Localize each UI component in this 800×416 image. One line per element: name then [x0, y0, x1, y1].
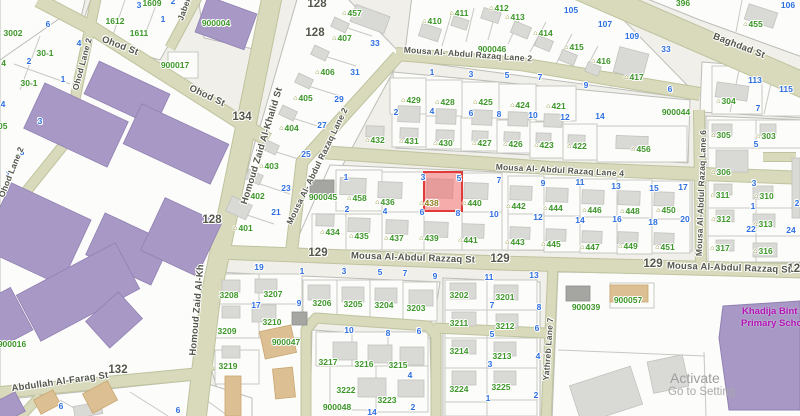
parcel-label[interactable]: ⌂407	[332, 33, 351, 43]
parcel-label[interactable]: ⌂410	[422, 16, 441, 26]
parcel-number: 303	[762, 131, 776, 141]
selected-parcel-label[interactable]: ⌂438	[419, 198, 438, 208]
parcel-label[interactable]: ⌂4	[0, 58, 6, 68]
address-number: 16	[612, 214, 621, 224]
building	[464, 183, 489, 200]
parcel-number: 422	[573, 141, 587, 151]
address-number: 9	[297, 298, 302, 308]
parcel-number: 423	[540, 140, 554, 150]
building	[222, 346, 240, 358]
house-icon: ⌂	[655, 244, 659, 251]
parcel-label[interactable]: ⌂312	[711, 214, 730, 224]
parcel-label[interactable]: ⌂445	[541, 239, 560, 249]
parcel-number: 417	[630, 72, 644, 82]
building	[222, 306, 240, 318]
address-number: 1	[430, 67, 435, 77]
address-number: 6	[420, 207, 425, 217]
house-icon: ⌂	[349, 233, 353, 240]
facility-label[interactable]: 900045	[309, 192, 337, 202]
house-icon: ⌂	[506, 203, 510, 210]
parcel-number: 414	[539, 28, 553, 38]
address-number: 23	[281, 183, 290, 193]
parcel-number: 424	[516, 100, 530, 110]
parcel-number: 415	[570, 42, 584, 52]
parcel-number: 305	[717, 130, 731, 140]
house-icon: ⌂	[422, 18, 426, 25]
parcel-number: 306	[717, 167, 731, 177]
parcel-number: 435	[355, 231, 369, 241]
house-icon: ⌂	[458, 237, 462, 244]
facility-label[interactable]: 3209	[218, 326, 237, 336]
parcel-label[interactable]: ⌂444	[543, 203, 562, 213]
address-number: 7	[403, 268, 408, 278]
parcel-label[interactable]: ⌂313	[753, 219, 772, 229]
house-icon: ⌂	[711, 216, 715, 223]
address-number: 3	[421, 172, 426, 182]
address-number: 17	[678, 182, 687, 192]
facility-label[interactable]: 900017	[161, 60, 189, 70]
parcel-label[interactable]: ⌂421	[546, 101, 565, 111]
parcel-label[interactable]: ⌂458	[347, 193, 366, 203]
parcel-label[interactable]: ⌂425	[473, 97, 492, 107]
parcel-label[interactable]: ⌂427	[472, 138, 491, 148]
parcel-number: 458	[353, 193, 367, 203]
address-number: 3	[137, 0, 142, 10]
address-number: 8	[456, 208, 461, 218]
parcel-label[interactable]: ⌂456	[631, 144, 650, 154]
parcel-label[interactable]: ⌂413	[505, 12, 524, 22]
address-number: 6	[469, 108, 474, 118]
address-number: 4	[383, 206, 388, 216]
address-number: 7	[538, 72, 543, 82]
parcel-number: 437	[390, 233, 404, 243]
parcel-label[interactable]: ⌂417	[624, 72, 643, 82]
windows-activate-watermark-line2: Go to Setting	[668, 386, 735, 398]
building	[452, 371, 476, 385]
parcel-label[interactable]: ⌂423	[534, 140, 553, 150]
address-number: 13	[529, 270, 538, 280]
house-icon: ⌂	[656, 207, 660, 214]
facility-label[interactable]: 900016	[0, 339, 26, 349]
facility-label[interactable]: 3216	[355, 359, 374, 369]
parcel-number: 401	[239, 223, 253, 233]
map-canvas[interactable]: Activate Go to Setting 16091612161130023…	[0, 0, 800, 416]
address-number: 2	[171, 0, 176, 6]
address-number: 8	[537, 302, 542, 312]
house-icon: ⌂	[332, 35, 336, 42]
address-number: 13	[611, 181, 620, 191]
address-number: 31	[350, 67, 359, 77]
building	[566, 286, 590, 301]
parcel-label[interactable]: ⌂305	[711, 130, 730, 140]
address-number: 5	[505, 70, 510, 80]
address-number: 15	[649, 183, 658, 193]
address-number: 6	[59, 401, 64, 411]
address-number: 17	[251, 300, 260, 310]
house-icon: ⌂	[375, 199, 379, 206]
house-icon: ⌂	[365, 137, 369, 144]
parcel[interactable]	[445, 402, 487, 416]
parcel-label[interactable]: ⌂429	[401, 95, 420, 105]
address-number: 1	[300, 266, 305, 276]
building	[618, 191, 640, 206]
address-number: 9	[584, 80, 589, 90]
facility-label[interactable]: 900057	[614, 295, 642, 305]
facility-label[interactable]: 3223	[378, 395, 397, 405]
parcel[interactable]	[487, 400, 537, 416]
address-number: 2	[394, 107, 399, 117]
parcel-number: 4	[1, 58, 6, 68]
parcel-label[interactable]: ⌂439	[419, 233, 438, 243]
address-number: 7	[756, 103, 761, 113]
building	[398, 106, 421, 123]
parcel-number: 410	[428, 16, 442, 26]
house-icon: ⌂	[401, 97, 405, 104]
facility-label[interactable]: 3210	[263, 317, 282, 327]
address-number: 6	[535, 323, 540, 333]
parcel-number: 438	[425, 198, 439, 208]
address-number: 115	[779, 84, 793, 94]
parcel-label[interactable]: ⌂447	[580, 242, 599, 252]
parcel-label[interactable]: ⌂449	[618, 241, 637, 251]
parcel-label[interactable]: ⌂430	[433, 138, 452, 148]
parcel-number: 429	[407, 95, 421, 105]
building	[508, 112, 528, 127]
facility-label[interactable]: 900004	[202, 18, 230, 28]
address-number: 14	[595, 111, 604, 121]
address-number: 106	[781, 0, 795, 10]
block-number-label: 128	[202, 214, 221, 226]
facility-label[interactable]: 1612	[106, 16, 125, 26]
address-number: 12	[533, 212, 542, 222]
facility-label[interactable]: 30-1	[36, 48, 53, 58]
parcel-label[interactable]: ⌂310	[754, 191, 773, 201]
facility-label[interactable]: 3002	[4, 28, 23, 38]
address-number: 6	[417, 326, 422, 336]
block-number-label: 129	[490, 253, 509, 265]
parcel-number: 416	[597, 56, 611, 66]
facility-label[interactable]: 900048	[323, 402, 351, 412]
parcel-number: 411	[455, 8, 469, 18]
parcel-label[interactable]: ⌂446	[582, 205, 601, 215]
parcel-label[interactable]: ⌂448	[620, 206, 639, 216]
address-number: 1	[486, 393, 491, 403]
house-icon: ⌂	[618, 243, 622, 250]
block-number-label: 129	[643, 258, 662, 270]
house-icon: ⌂	[534, 142, 538, 149]
parcel-number: 407	[338, 33, 352, 43]
house-icon: ⌂	[320, 229, 324, 236]
parcel-number: 448	[626, 206, 640, 216]
facility-label[interactable]: 3206	[313, 298, 332, 308]
facility-label[interactable]: 3202	[450, 290, 469, 300]
facility-label[interactable]: 1609	[143, 0, 162, 8]
address-number: 22	[746, 224, 755, 234]
parcel-number: 317	[716, 243, 730, 253]
address-number: 24	[786, 225, 795, 235]
parcel-number: 406	[321, 67, 335, 77]
house-icon: ⌂	[347, 195, 351, 202]
address-number: 4	[536, 351, 541, 361]
house-icon: ⌂	[433, 140, 437, 147]
house-icon: ⌂	[419, 200, 423, 207]
house-icon: ⌂	[342, 10, 346, 17]
parcel-number: 456	[637, 144, 651, 154]
address-number: 6	[668, 84, 673, 94]
facility-label[interactable]: 3224	[450, 384, 469, 394]
address-number: 4	[408, 370, 413, 380]
building	[792, 158, 800, 218]
parcel-number: 304	[722, 96, 736, 106]
address-number: 4	[430, 106, 435, 116]
parcel-label[interactable]: ⌂422	[567, 141, 586, 151]
house-icon: ⌂	[564, 44, 568, 51]
parcel-number: 430	[439, 138, 453, 148]
parcel-label[interactable]: ⌂434	[320, 227, 339, 237]
parcel-number: 441	[464, 235, 478, 245]
address-number: 3	[752, 178, 757, 188]
facility-label[interactable]: 3215	[389, 360, 408, 370]
facility-label[interactable]: 900044	[662, 107, 690, 117]
house-icon: ⌂	[533, 30, 537, 37]
parcel-label[interactable]: ⌂457	[342, 8, 361, 18]
house-icon: ⌂	[399, 138, 403, 145]
parcel-label[interactable]: ⌂428	[435, 97, 454, 107]
address-number: 20	[680, 214, 689, 224]
parcel-label[interactable]: ⌂435	[349, 231, 368, 241]
facility-label[interactable]: 3225	[492, 382, 511, 392]
address-number: 1	[61, 74, 66, 84]
house-icon: ⌂	[711, 169, 715, 176]
parcel-label[interactable]: ⌂440	[462, 198, 481, 208]
address-number: 19	[254, 262, 263, 272]
parcel-number: 447	[586, 242, 600, 252]
parcel-number: 450	[662, 205, 676, 215]
address-number: 6	[46, 19, 51, 29]
facility-label[interactable]: 3208	[220, 290, 239, 300]
address-number: 33	[661, 44, 670, 54]
building	[292, 312, 307, 325]
facility-label[interactable]: 3005	[0, 121, 7, 131]
parcel-label[interactable]: ⌂455	[743, 19, 762, 29]
facility-label[interactable]: 3204	[375, 300, 394, 310]
parcel-number: 316	[759, 246, 773, 256]
house-icon: ⌂	[567, 143, 571, 150]
house-icon: ⌂	[505, 14, 509, 21]
facility-label[interactable]: 3222	[337, 385, 356, 395]
building	[378, 182, 403, 199]
facility-label[interactable]: 3207	[264, 289, 283, 299]
building	[510, 186, 532, 201]
address-number: 5	[754, 139, 759, 149]
address-number: 14	[367, 407, 376, 416]
address-number: 3	[469, 69, 474, 79]
school-name-label: Primary School G	[741, 318, 800, 329]
house-icon: ⌂	[279, 125, 283, 132]
facility-label[interactable]: 1611	[130, 28, 148, 38]
parcel-label[interactable]: ⌂443	[505, 237, 524, 247]
house-icon: ⌂	[384, 235, 388, 242]
address-number: 3	[488, 359, 493, 369]
parcel-number: 428	[441, 97, 455, 107]
building	[225, 376, 241, 416]
parcel-label[interactable]: ⌂424	[510, 100, 529, 110]
parcel-number: 425	[479, 97, 493, 107]
facility-label[interactable]: 3214	[450, 346, 469, 356]
parcel-number: 451	[661, 242, 675, 252]
address-number: 113	[748, 75, 762, 85]
house-icon: ⌂	[462, 200, 466, 207]
building	[398, 380, 424, 397]
parcel-number: 442	[512, 201, 526, 211]
house-icon: ⌂	[580, 244, 584, 251]
facility-label[interactable]: 30-1	[20, 78, 37, 88]
house-icon: ⌂	[473, 99, 477, 106]
parcel-number: 432	[371, 135, 385, 145]
parcel-number: 311	[716, 190, 730, 200]
house-icon: ⌂	[631, 146, 635, 153]
address-number: 9	[433, 271, 438, 281]
parcel-label[interactable]: ⌂411	[450, 8, 469, 18]
house-icon: ⌂	[711, 192, 715, 199]
facility-label[interactable]: 3211	[450, 318, 468, 328]
address-number: 2	[27, 56, 32, 66]
parcel-number: 444	[549, 203, 563, 213]
parcel-number: 312	[717, 214, 731, 224]
address-number: 1	[344, 172, 349, 182]
facility-label[interactable]: 3219	[219, 361, 238, 371]
house-icon: ⌂	[450, 10, 454, 17]
parcel-label[interactable]: ⌂431	[399, 136, 418, 146]
address-number: 10	[489, 209, 498, 219]
house-icon: ⌂	[546, 103, 550, 110]
house-icon: ⌂	[541, 241, 545, 248]
parcel-label[interactable]: ⌂406	[315, 67, 334, 77]
address-number: 29	[334, 94, 343, 104]
address-number: 3	[38, 116, 43, 126]
parcel-label[interactable]: ⌂405	[293, 93, 312, 103]
house-icon: ⌂	[543, 205, 547, 212]
facility-label[interactable]: 900047	[272, 337, 300, 347]
parcel-number: 455	[749, 19, 763, 29]
facility-label[interactable]: 900039	[572, 302, 600, 312]
facility-label[interactable]: 3212	[496, 321, 515, 331]
parcel-label[interactable]: ⌂404	[279, 123, 298, 133]
parcel-label[interactable]: ⌂401	[233, 223, 252, 233]
school-name-label: Khadija Bint Khuw	[742, 306, 800, 317]
block-number-label: 134	[232, 111, 251, 123]
parcel-label[interactable]: ⌂437	[384, 233, 403, 243]
house-icon: ⌂	[624, 74, 628, 81]
house-icon: ⌂	[710, 245, 714, 252]
parcel-number: 449	[624, 241, 638, 251]
parcel-label[interactable]: ⌂426	[503, 139, 522, 149]
facility-label[interactable]: 3213	[493, 351, 512, 361]
house-icon: ⌂	[510, 102, 514, 109]
parcel-label[interactable]: ⌂317	[710, 243, 729, 253]
address-number: 25	[301, 149, 310, 159]
address-number: 4	[1, 99, 6, 109]
address-number: 2	[795, 198, 800, 208]
house-icon: ⌂	[711, 132, 715, 139]
house-icon: ⌂	[435, 99, 439, 106]
house-icon: ⌂	[472, 140, 476, 147]
parcel-label[interactable]: ⌂432	[365, 135, 384, 145]
parcel-number: 457	[348, 8, 362, 18]
address-number: 12	[560, 112, 569, 122]
parcel-label[interactable]: ⌂416	[591, 56, 610, 66]
map-geometry	[0, 0, 800, 416]
address-number: 7	[497, 175, 502, 185]
building	[272, 367, 295, 399]
building	[582, 190, 604, 205]
parcel-number: 310	[760, 191, 774, 201]
building	[436, 109, 457, 125]
house-icon: ⌂	[753, 248, 757, 255]
parcel-label[interactable]: ⌂450	[656, 205, 675, 215]
address-number: 1	[161, 14, 166, 24]
parcel-label[interactable]: ⌂415	[564, 42, 583, 52]
address-number: 11	[576, 177, 585, 187]
parcel-label[interactable]: ⌂306	[711, 167, 730, 177]
facility-label[interactable]: 3205	[344, 299, 363, 309]
address-number: 105	[564, 5, 578, 15]
parcel-number: 440	[468, 198, 482, 208]
parcel-number: 445	[547, 239, 561, 249]
facility-label[interactable]: 3217	[319, 357, 338, 367]
address-number: 3	[342, 266, 347, 276]
block-number-label: 132	[108, 364, 127, 376]
parcel-number: 439	[425, 233, 439, 243]
parcel-number: 426	[509, 139, 523, 149]
parcel-number: 446	[588, 205, 602, 215]
parcel-label[interactable]: ⌂303	[756, 131, 775, 141]
parcel-number: 443	[511, 237, 525, 247]
address-number: 11	[485, 272, 494, 282]
parcel-number: 313	[759, 219, 773, 229]
address-number: 14	[575, 215, 584, 225]
address-number: 33	[370, 38, 379, 48]
parcel-number: 404	[285, 123, 299, 133]
address-number: 5	[378, 267, 383, 277]
parcel-label[interactable]: ⌂451	[655, 242, 674, 252]
building	[472, 110, 493, 126]
address-number: 8	[386, 328, 391, 338]
house-icon: ⌂	[505, 239, 509, 246]
house-icon: ⌂	[716, 98, 720, 105]
parcel-number: 421	[552, 101, 566, 111]
parcel-number: 413	[511, 12, 525, 22]
address-number: 1	[751, 201, 756, 211]
house-icon: ⌂	[743, 21, 747, 28]
facility-label[interactable]: 3203	[407, 303, 426, 313]
address-number: 8	[497, 109, 502, 119]
address-number: 7	[490, 300, 495, 310]
parcel-number: 431	[405, 136, 419, 146]
parcel-label[interactable]: ⌂311	[711, 190, 730, 200]
parcel-label[interactable]: ⌂441	[458, 235, 477, 245]
parcel-label[interactable]: ⌂414	[533, 28, 552, 38]
facility-label[interactable]: 3201	[496, 292, 515, 302]
address-number: 2	[534, 390, 539, 400]
parcel-number: 427	[478, 138, 492, 148]
parcel-label[interactable]: ⌂304	[716, 96, 735, 106]
block-number-label: 129	[308, 247, 327, 259]
address-number: 18	[648, 217, 657, 227]
facility-label[interactable]: 396	[676, 0, 690, 8]
parcel-label[interactable]: ⌂442	[506, 201, 525, 211]
parcel-label[interactable]: ⌂316	[753, 246, 772, 256]
